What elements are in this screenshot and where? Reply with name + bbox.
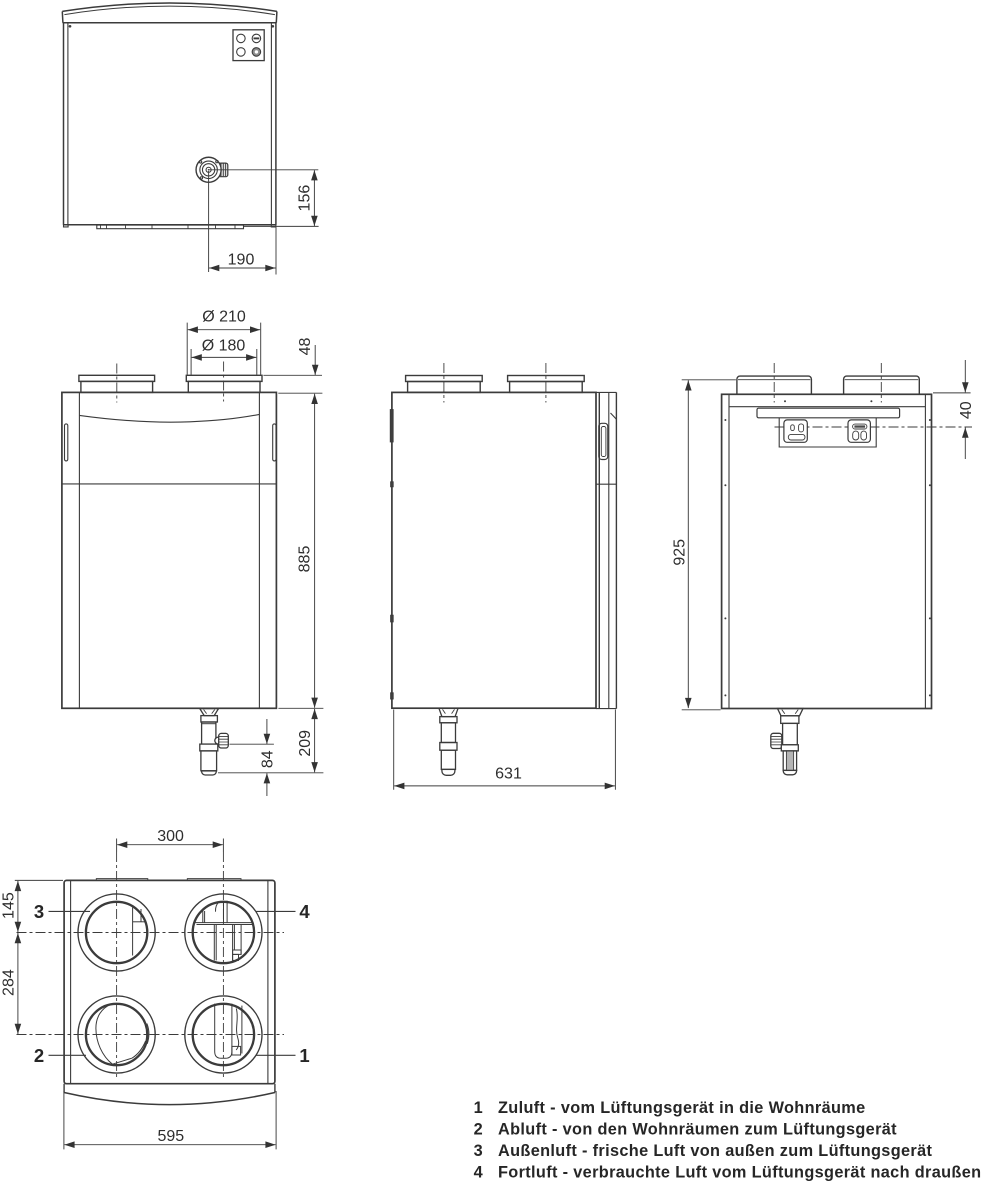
svg-text:84: 84 bbox=[260, 750, 277, 768]
svg-text:Fortluft - verbrauchte Luft vo: Fortluft - verbrauchte Luft vom Lüftungs… bbox=[498, 1164, 981, 1182]
svg-text:2: 2 bbox=[474, 1121, 483, 1139]
svg-text:300: 300 bbox=[157, 828, 184, 845]
svg-text:595: 595 bbox=[157, 1128, 184, 1145]
svg-text:4: 4 bbox=[299, 901, 310, 922]
svg-text:Abluft - von den Wohnräumen zu: Abluft - von den Wohnräumen zum Lüftungs… bbox=[498, 1121, 897, 1139]
svg-text:Ø 210: Ø 210 bbox=[202, 309, 246, 326]
svg-text:156: 156 bbox=[297, 185, 314, 212]
svg-text:3: 3 bbox=[34, 901, 44, 922]
svg-text:925: 925 bbox=[672, 539, 689, 566]
svg-text:209: 209 bbox=[297, 730, 314, 757]
svg-text:Zuluft - vom Lüftungsgerät in: Zuluft - vom Lüftungsgerät in die Wohnrä… bbox=[498, 1099, 866, 1117]
svg-text:40: 40 bbox=[958, 401, 975, 419]
svg-text:145: 145 bbox=[0, 892, 17, 919]
svg-text:631: 631 bbox=[495, 766, 522, 783]
svg-text:Ø 180: Ø 180 bbox=[202, 337, 246, 354]
svg-text:48: 48 bbox=[297, 338, 314, 356]
svg-text:1: 1 bbox=[299, 1045, 309, 1066]
svg-text:3: 3 bbox=[474, 1142, 483, 1160]
svg-text:190: 190 bbox=[228, 251, 255, 268]
svg-text:Außenluft - frische Luft von a: Außenluft - frische Luft von außen zum L… bbox=[498, 1142, 932, 1160]
svg-text:4: 4 bbox=[474, 1164, 483, 1182]
svg-text:2: 2 bbox=[34, 1045, 44, 1066]
svg-text:284: 284 bbox=[0, 969, 17, 996]
svg-text:1: 1 bbox=[474, 1099, 483, 1117]
svg-text:885: 885 bbox=[297, 546, 314, 573]
